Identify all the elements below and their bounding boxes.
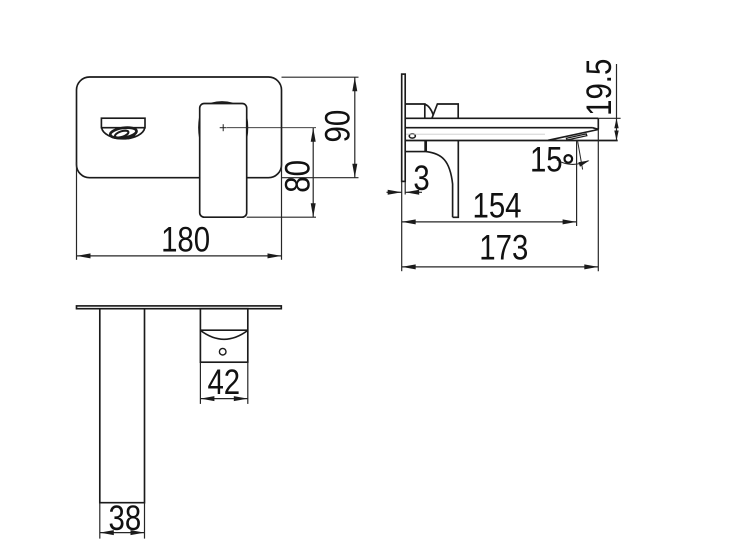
svg-text:80: 80 bbox=[278, 160, 317, 193]
svg-text:15: 15 bbox=[530, 140, 563, 179]
svg-text:19.5: 19.5 bbox=[580, 59, 619, 116]
svg-text:180: 180 bbox=[161, 220, 210, 259]
svg-text:90: 90 bbox=[318, 110, 357, 143]
svg-text:3: 3 bbox=[413, 159, 429, 198]
svg-text:154: 154 bbox=[472, 186, 521, 225]
svg-text:173: 173 bbox=[479, 228, 528, 267]
svg-text:38: 38 bbox=[109, 498, 142, 537]
svg-text:42: 42 bbox=[207, 362, 240, 401]
